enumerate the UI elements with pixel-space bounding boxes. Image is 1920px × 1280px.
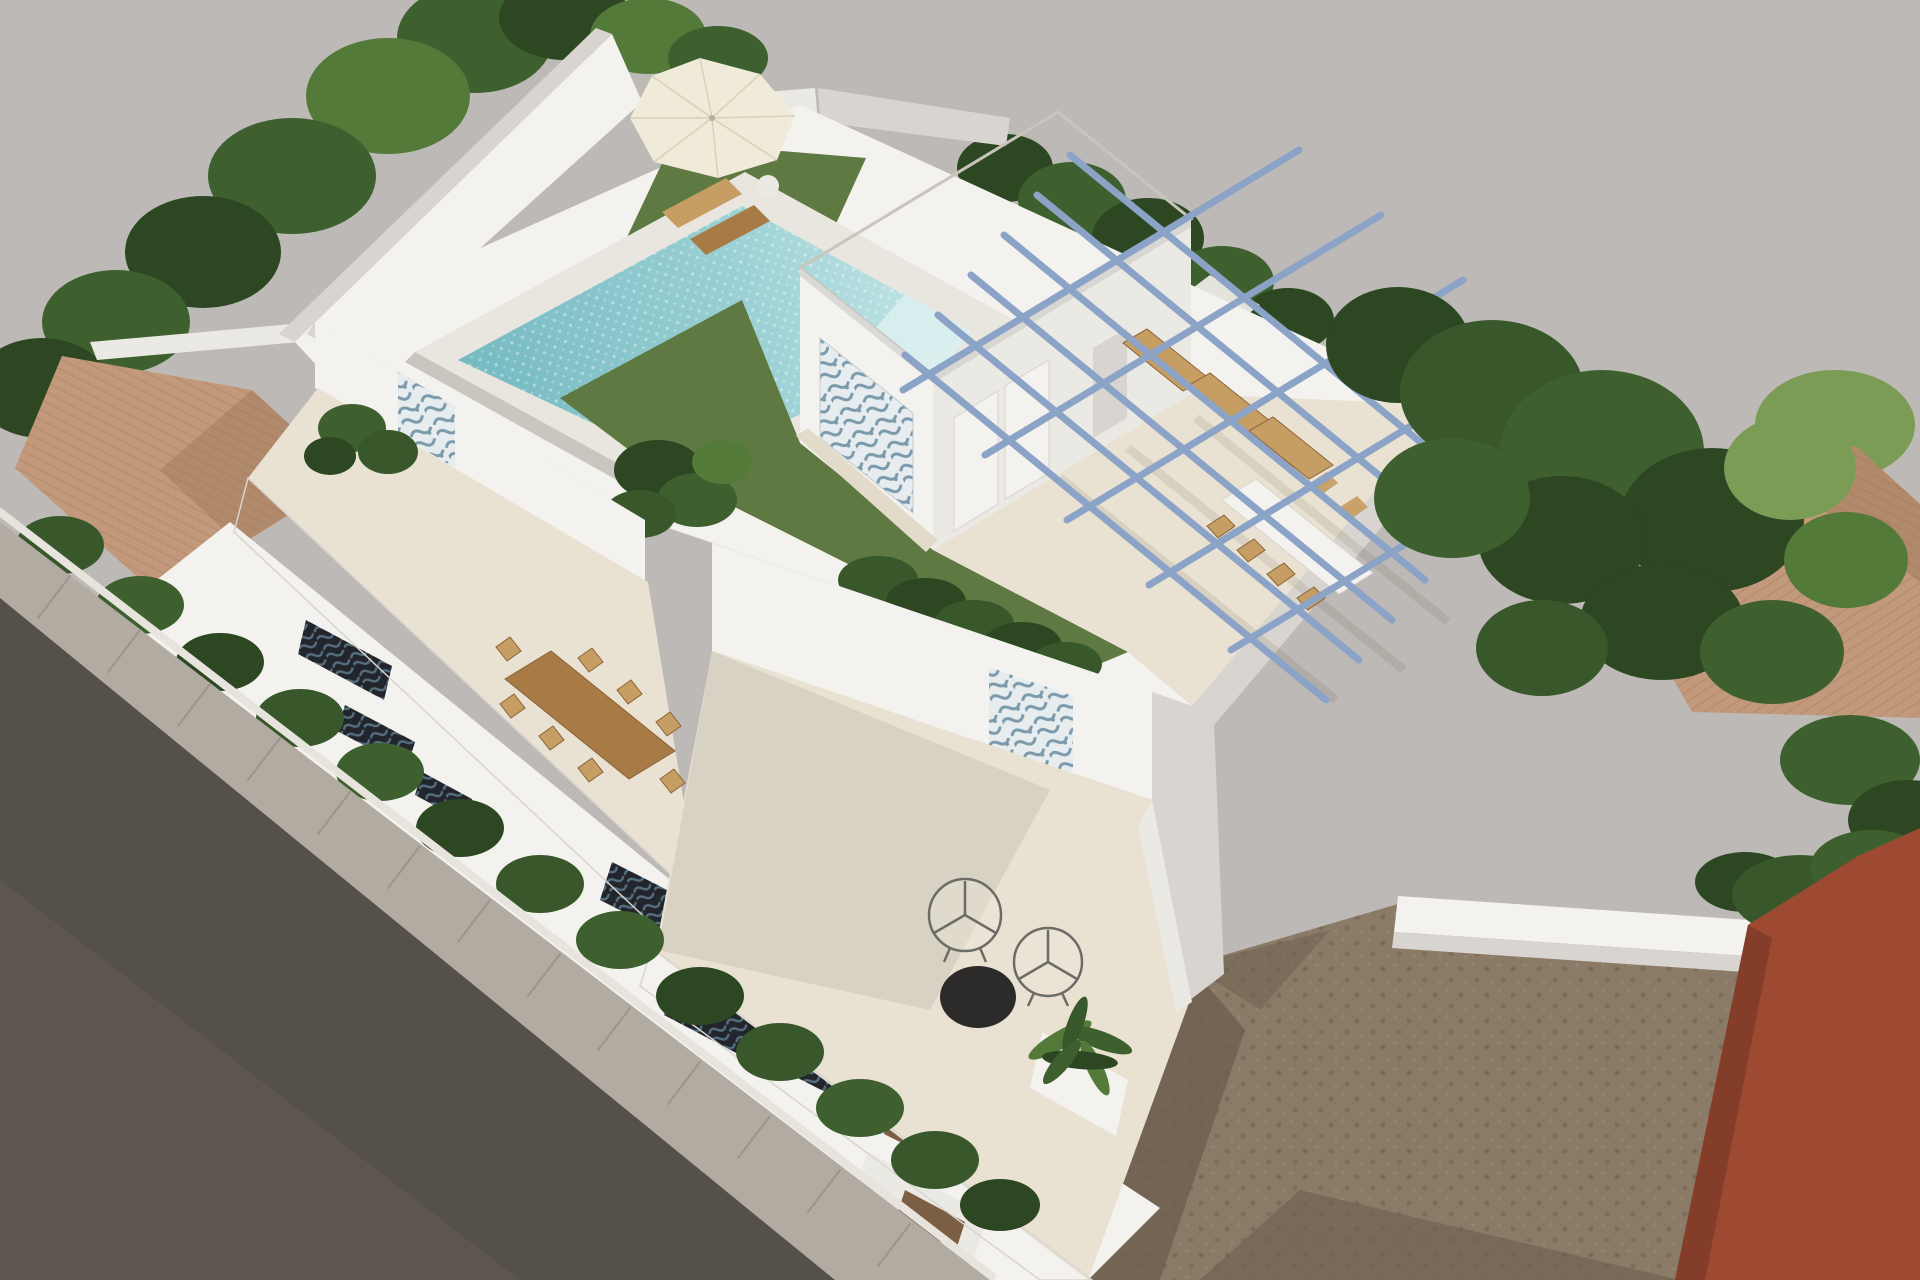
tree-canopy xyxy=(1374,438,1530,558)
hedge-bush xyxy=(960,1179,1040,1231)
side-table xyxy=(757,175,779,197)
architectural-render: Aerial 3D rendering of a modern two-stor… xyxy=(0,0,1920,1280)
coffee-table xyxy=(940,966,1016,1028)
terrace-plant xyxy=(358,430,418,474)
hedge-bush xyxy=(416,799,504,857)
tree-canopy xyxy=(1476,600,1608,696)
terrace-plant xyxy=(304,437,356,475)
tree-canopy xyxy=(1784,512,1908,608)
tropical-plant xyxy=(692,440,752,484)
hedge-bush xyxy=(891,1131,979,1189)
hedge-bush xyxy=(576,911,664,969)
tree-canopy xyxy=(1700,600,1844,704)
hedge-bush xyxy=(816,1079,904,1137)
hedge-bush xyxy=(656,967,744,1025)
parasol-pole xyxy=(709,115,715,121)
hedge-bush xyxy=(736,1023,824,1081)
tree-canopy xyxy=(1724,416,1856,520)
